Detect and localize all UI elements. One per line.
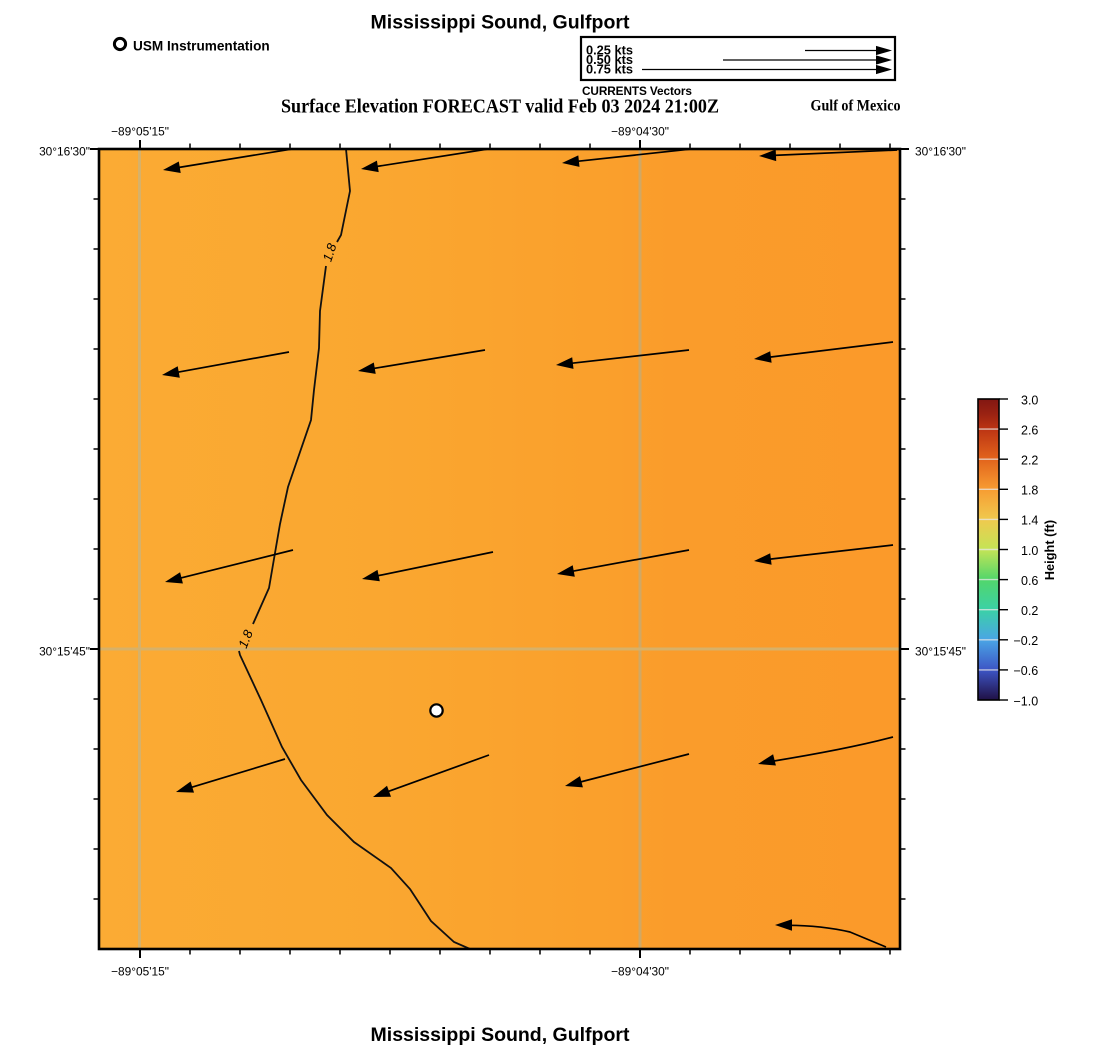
svg-text:30°15'45": 30°15'45"	[915, 644, 966, 658]
svg-text:−89°04'30": −89°04'30"	[611, 964, 669, 978]
svg-text:0.2: 0.2	[1021, 604, 1038, 618]
svg-text:2.6: 2.6	[1021, 423, 1038, 437]
svg-text:1.8: 1.8	[1021, 484, 1038, 498]
svg-text:−0.6: −0.6	[1014, 664, 1039, 678]
svg-text:30°16'30": 30°16'30"	[915, 144, 966, 158]
svg-text:Mississippi Sound, Gulfport: Mississippi Sound, Gulfport	[371, 1024, 630, 1046]
svg-text:Gulf of Mexico: Gulf of Mexico	[811, 98, 901, 115]
svg-text:−89°04'30": −89°04'30"	[611, 124, 669, 138]
svg-text:1.0: 1.0	[1021, 544, 1038, 558]
svg-text:−89°05'15": −89°05'15"	[111, 964, 169, 978]
svg-text:0.75 kts: 0.75 kts	[586, 62, 633, 77]
svg-text:2.2: 2.2	[1021, 454, 1038, 468]
svg-text:30°15'45": 30°15'45"	[39, 644, 90, 658]
svg-text:3.0: 3.0	[1021, 393, 1038, 407]
svg-text:Mississippi Sound, Gulfport: Mississippi Sound, Gulfport	[371, 12, 630, 34]
svg-text:−0.2: −0.2	[1014, 634, 1039, 648]
svg-text:USM Instrumentation: USM Instrumentation	[133, 39, 270, 54]
svg-text:−1.0: −1.0	[1014, 694, 1039, 708]
svg-text:30°16'30": 30°16'30"	[39, 144, 90, 158]
svg-text:−89°05'15": −89°05'15"	[111, 124, 169, 138]
svg-text:1.4: 1.4	[1021, 514, 1038, 528]
svg-text:0.6: 0.6	[1021, 574, 1038, 588]
svg-text:Surface Elevation FORECAST val: Surface Elevation FORECAST valid Feb 03 …	[281, 96, 719, 118]
svg-text:Height (ft): Height (ft)	[1042, 520, 1057, 580]
